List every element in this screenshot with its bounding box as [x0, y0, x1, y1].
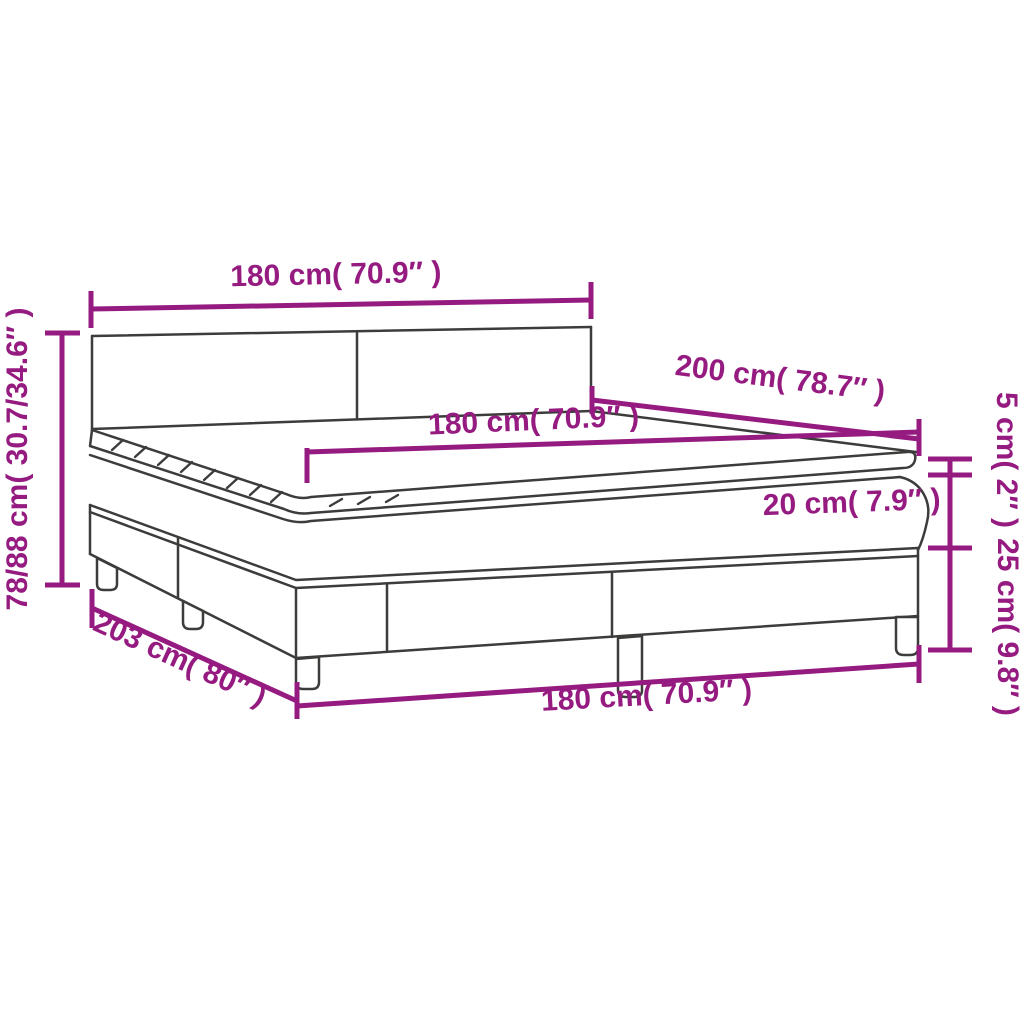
- dimension-side-bracket: 5 cm( 2″ ) 25 cm( 9.8″ ): [928, 392, 1024, 716]
- leg-1: [97, 558, 117, 590]
- diagram-canvas: 180 cm( 70.9″ ) 78/88 cm( 30.7/34.6″ ) 2…: [0, 0, 1024, 1024]
- dim-label-frame-width: 180 cm( 70.9″ ): [540, 673, 753, 718]
- dim-label-topper-height: 5 cm( 2″ ): [990, 392, 1023, 528]
- dimension-mattress-height: 20 cm( 7.9″ ): [762, 483, 941, 522]
- dim-label-bed-height: 78/88 cm( 30.7/34.6″ ): [1, 308, 34, 611]
- dimension-frame-width: 180 cm( 70.9″ ): [297, 645, 919, 718]
- dim-label-bed-length: 200 cm( 78.7″ ): [673, 349, 887, 408]
- leg-2: [183, 601, 203, 629]
- bed-dimension-diagram: 180 cm( 70.9″ ) 78/88 cm( 30.7/34.6″ ) 2…: [0, 0, 1024, 1024]
- dim-label-mattress-width: 180 cm( 70.9″ ): [427, 399, 639, 441]
- dimension-headboard-width: 180 cm( 70.9″ ): [91, 256, 591, 328]
- dim-label-frame-length: 203 cm( 80″ ): [88, 606, 271, 713]
- dimension-bed-height: 78/88 cm( 30.7/34.6″ ): [1, 308, 80, 611]
- leg-5: [896, 617, 918, 655]
- base-outline: [90, 505, 918, 658]
- dim-label-mattress-height: 20 cm( 7.9″ ): [762, 483, 941, 522]
- dim-label-base-height: 25 cm( 9.8″ ): [991, 538, 1024, 716]
- dim-label-headboard-width: 180 cm( 70.9″ ): [230, 256, 442, 293]
